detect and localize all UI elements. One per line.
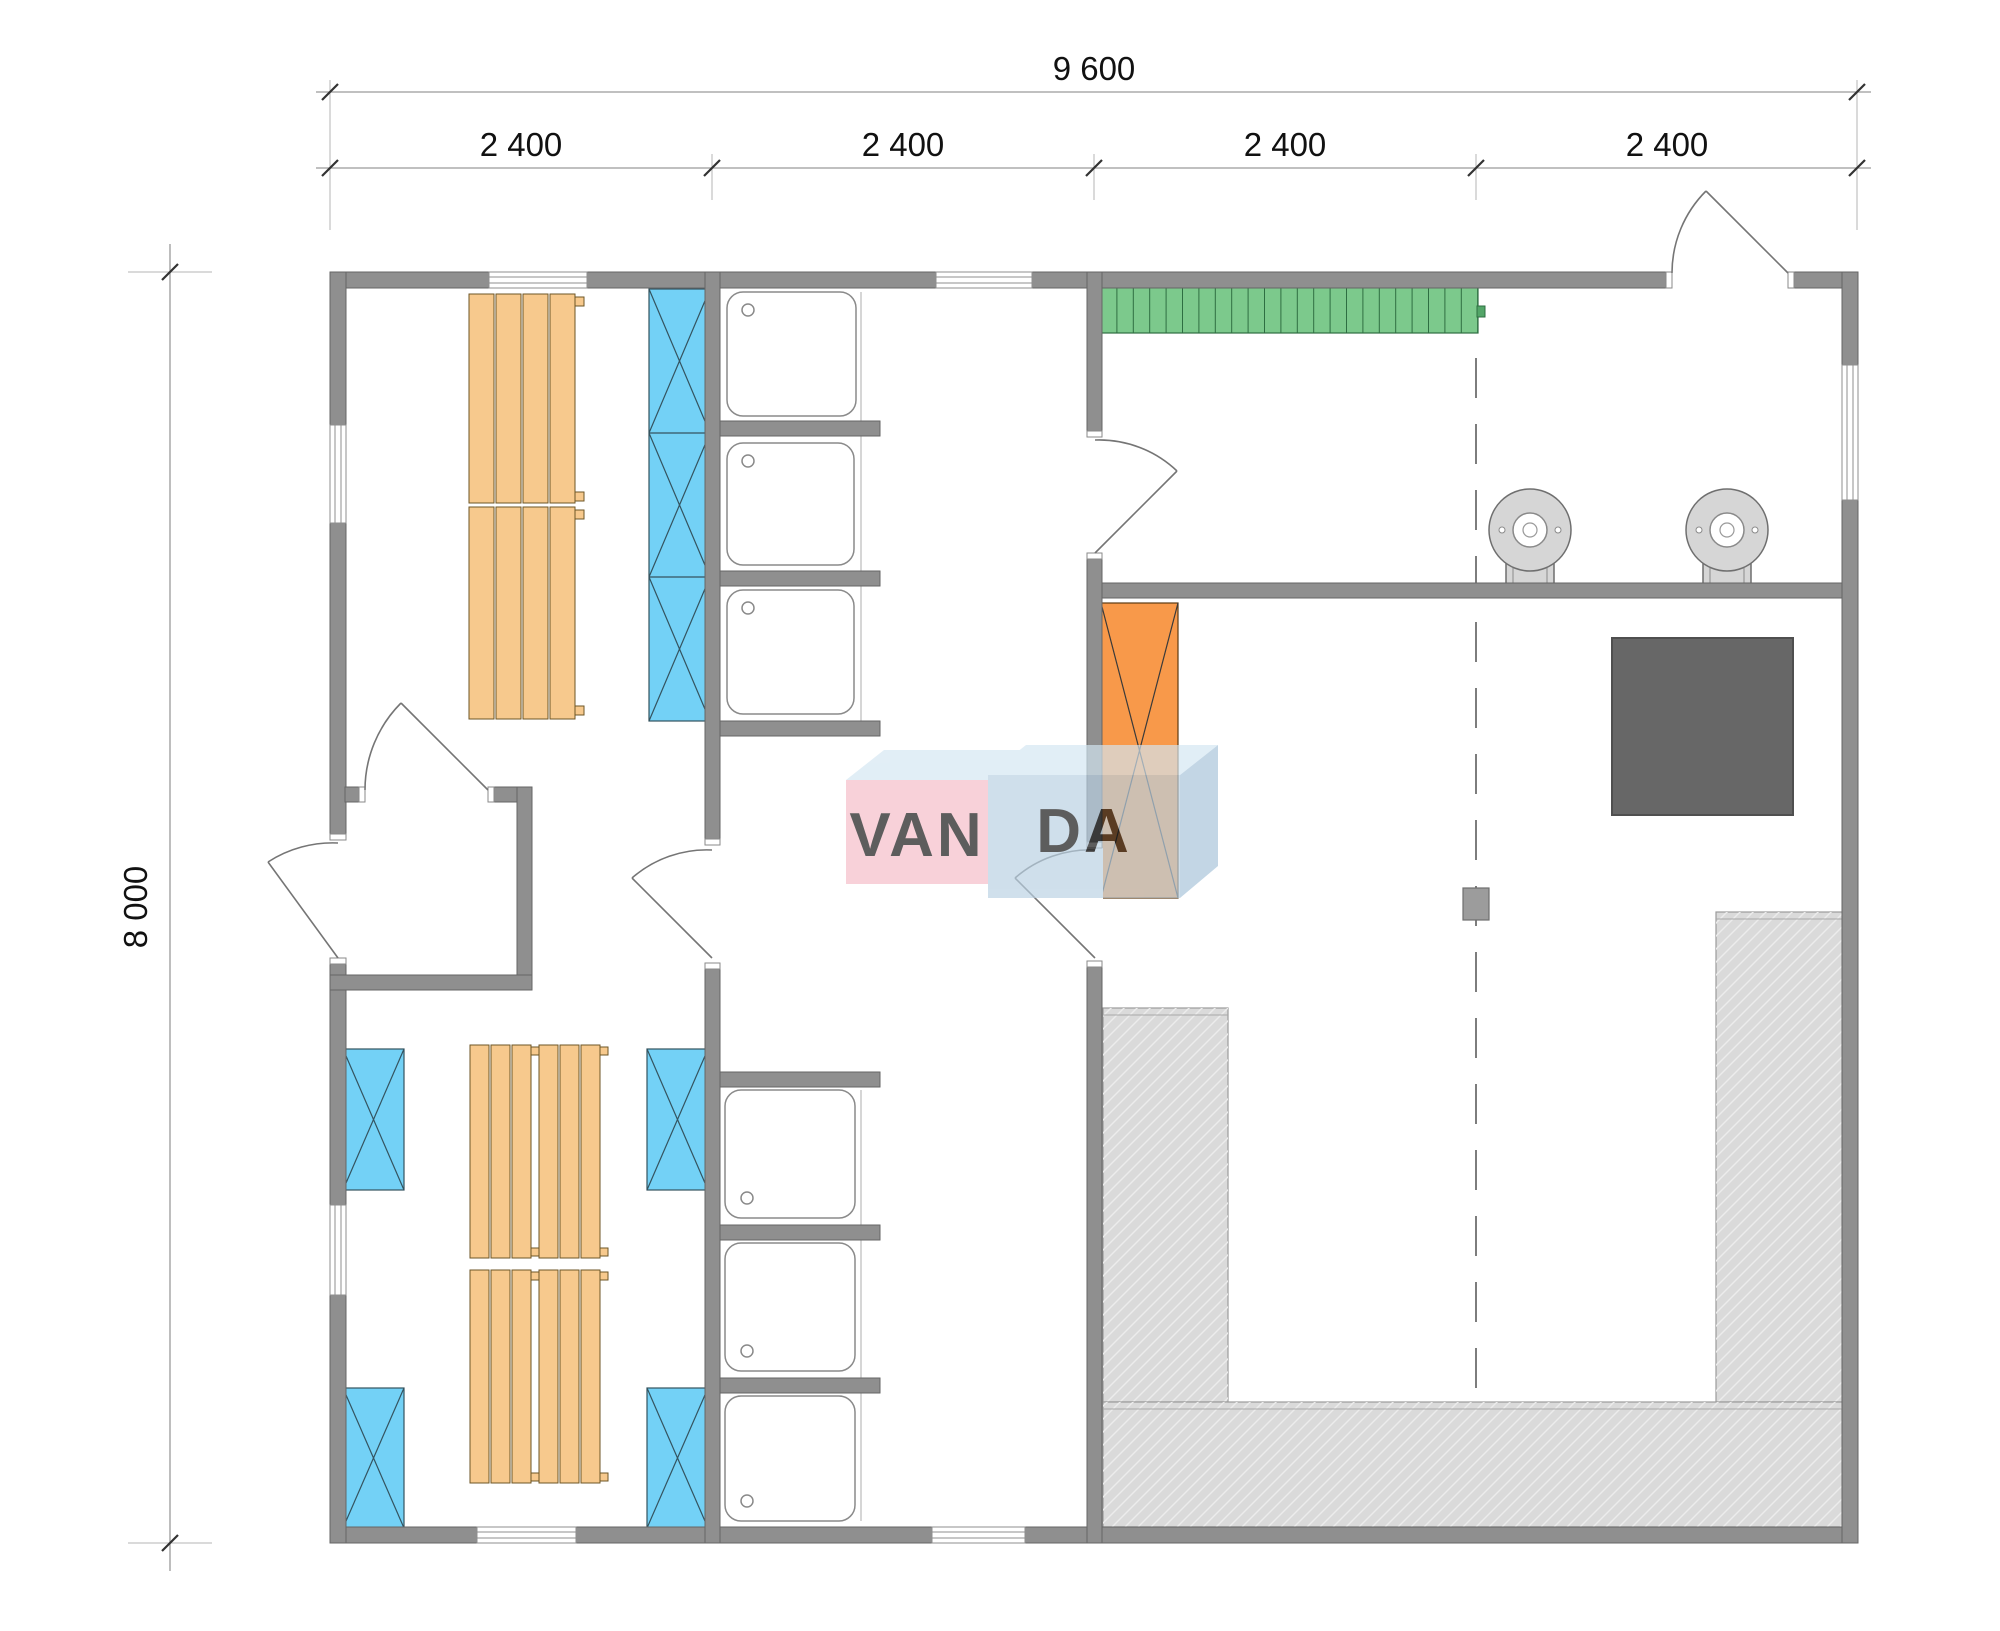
platform-left xyxy=(1103,1008,1228,1402)
wall-stall-divider-6 xyxy=(720,1378,880,1393)
dimension-module-2: 2 400 xyxy=(862,126,945,163)
shower-stall-3 xyxy=(727,590,854,714)
shower-stall-2 xyxy=(727,443,854,565)
window-bottom-2 xyxy=(932,1527,1025,1543)
wall-vestibule-bottom xyxy=(330,975,532,990)
wall-stall-divider-1 xyxy=(720,421,880,436)
blue-cabinet-tr xyxy=(647,1049,708,1190)
blue-cabinet-bl xyxy=(343,1388,404,1528)
shower-stall-5 xyxy=(725,1243,855,1371)
dimension-total-height: 8 000 xyxy=(117,866,154,949)
wall-vestibule-right xyxy=(517,787,532,990)
window-top-1 xyxy=(489,272,587,288)
shower-stall-1 xyxy=(727,292,856,416)
floor-plan-svg: 9 600 2 400 2 400 2 400 2 400 8 000 VAN … xyxy=(0,0,2000,1631)
wood-bench-cluster-2 xyxy=(539,1045,608,1258)
wall-dressing-strip xyxy=(1102,583,1842,598)
window-left-2 xyxy=(330,1205,346,1295)
dimension-total-width: 9 600 xyxy=(1053,50,1136,87)
wood-bench-cluster-4 xyxy=(539,1270,608,1483)
wall-stall-divider-4 xyxy=(720,1072,880,1087)
wall-stall-divider-5 xyxy=(720,1225,880,1240)
dimension-module-1: 2 400 xyxy=(480,126,563,163)
wood-bench-cluster-3 xyxy=(470,1270,539,1483)
blue-cabinet-tl xyxy=(343,1049,404,1190)
platform-right xyxy=(1716,912,1843,1402)
wall-stall-divider-3 xyxy=(720,721,880,736)
watermark-logo: VAN DA xyxy=(846,745,1218,898)
window-top-2 xyxy=(936,272,1032,288)
dimension-module-4: 2 400 xyxy=(1626,126,1709,163)
green-slatted-bench xyxy=(1093,285,1485,333)
blue-cabinet-br xyxy=(647,1388,708,1528)
platform-bottom xyxy=(1103,1402,1843,1527)
wood-bench-cluster-1 xyxy=(470,1045,539,1258)
dimension-module-3: 2 400 xyxy=(1244,126,1327,163)
floor-plan-canvas: 9 600 2 400 2 400 2 400 2 400 8 000 VAN … xyxy=(0,0,2000,1631)
window-bottom-1 xyxy=(477,1527,576,1543)
stove-square xyxy=(1612,638,1793,815)
watermark-blue-top-face xyxy=(988,745,1218,775)
window-left-1 xyxy=(330,425,346,523)
window-right-1 xyxy=(1842,365,1858,500)
shower-stall-4 xyxy=(725,1090,855,1218)
wood-bench-room1 xyxy=(469,294,584,719)
blue-cabinet-room1 xyxy=(649,289,710,721)
watermark-text-van: VAN xyxy=(849,801,984,870)
watermark-text-da: DA xyxy=(1036,797,1132,866)
support-column xyxy=(1463,888,1489,920)
shower-stall-6 xyxy=(725,1396,855,1521)
wall-stall-divider-2 xyxy=(720,571,880,586)
